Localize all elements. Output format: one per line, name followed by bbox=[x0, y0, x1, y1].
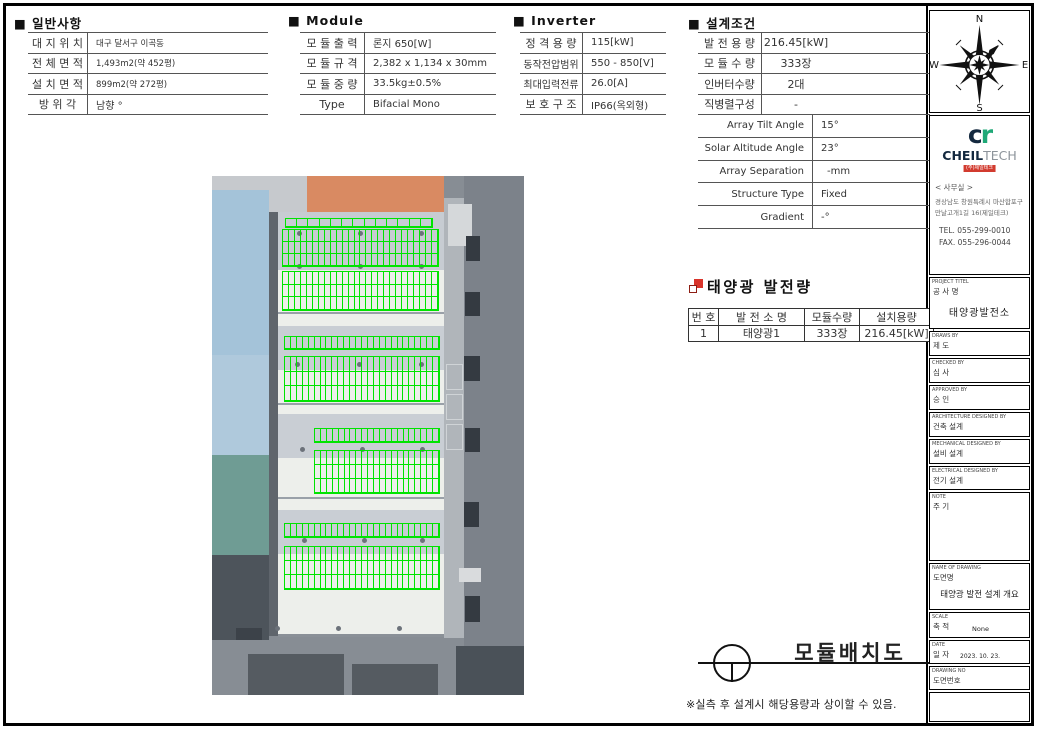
titleblock-label-en: DATE bbox=[932, 642, 945, 648]
field-value: -° bbox=[813, 206, 930, 228]
company-fax: FAX. 055-296-0044 bbox=[939, 238, 1011, 247]
field-label: 모 듈 수 량 bbox=[698, 54, 762, 74]
roof-vent bbox=[397, 626, 402, 631]
field-value: IP66(옥외형) bbox=[583, 95, 666, 115]
titleblock-project: PROJECT TITEL 공 사 명 태양광발전소 bbox=[929, 277, 1030, 329]
table-row: 보 호 구 조 IP66(옥외형) bbox=[520, 94, 666, 115]
field-value: Fixed bbox=[813, 183, 930, 205]
roof-vent bbox=[302, 538, 307, 543]
table-row: Array Tilt Angle 15° bbox=[698, 114, 930, 137]
column-header: 설치용량 bbox=[860, 309, 933, 325]
field-value: - bbox=[762, 95, 930, 115]
company-badge: (주)제일테크 bbox=[963, 165, 996, 172]
table-row: 인버터수량 2대 bbox=[698, 73, 930, 94]
company-tel: TEL. 055-299-0010 bbox=[939, 226, 1010, 235]
titleblock-draws-by: DRAWS BY 제 도 bbox=[929, 331, 1030, 356]
drawing-title: 모듈배치도 bbox=[770, 637, 930, 667]
titleblock-checked-by: CHECKED BY 심 사 bbox=[929, 358, 1030, 383]
drawing-reference-symbol-tick bbox=[731, 663, 733, 682]
titleblock-date: DATE 일 자 2023. 10. 23. bbox=[929, 640, 1030, 664]
table-row: 모 듈 수 량 333장 bbox=[698, 53, 930, 74]
field-label: 정 격 용 량 bbox=[520, 33, 583, 53]
table-row: 동작전압범위 550 - 850[V] bbox=[520, 53, 666, 74]
field-label: Solar Altitude Angle bbox=[698, 138, 813, 160]
compass-east-label: E bbox=[1022, 60, 1028, 71]
titleblock-label-kr: 도면명 bbox=[933, 572, 954, 583]
table-row: 발 전 용 량 216.45[kW] bbox=[698, 32, 930, 53]
titleblock-mechanical: MECHANICAL DESIGNED BY 설비 설계 bbox=[929, 439, 1030, 464]
drawing-name-value: 태양광 발전 설계 개요 bbox=[930, 588, 1029, 600]
ground-shadow bbox=[352, 664, 438, 695]
table-row: 정 격 용 량 115[kW] bbox=[520, 32, 666, 53]
parked-car bbox=[464, 502, 479, 527]
titleblock-label-kr: 심 사 bbox=[933, 367, 949, 378]
column-header: 발 전 소 명 bbox=[719, 309, 805, 325]
design-conditions-table: 발 전 용 량 216.45[kW] 모 듈 수 량 333장 인버터수량 2대… bbox=[698, 32, 930, 114]
titleblock-drawing-no: DRAWING NO 도면번호 bbox=[929, 666, 1030, 690]
roof-divider bbox=[278, 497, 444, 499]
field-value: 15° bbox=[813, 115, 930, 137]
titleblock-drawing-name: NAME OF DRAWING 도면명 태양광 발전 설계 개요 bbox=[929, 563, 1030, 610]
company-box: cr CHEILTECH (주)제일테크 < 사무실 > 경상남도 창원특례시 … bbox=[929, 115, 1030, 275]
titleblock-label-kr: 일 자 bbox=[933, 649, 949, 660]
table-row: 모 듈 출 력 론지 650[W] bbox=[300, 32, 496, 53]
parked-car bbox=[466, 236, 480, 261]
cheiltech-logo-icon: cr bbox=[930, 122, 1029, 147]
building-bottom-edge bbox=[278, 634, 444, 637]
solar-panel-array bbox=[284, 356, 440, 402]
field-label: 모 듈 중 량 bbox=[300, 74, 365, 94]
parked-car bbox=[465, 292, 480, 316]
titleblock-scale: SCALE 축 적 None bbox=[929, 612, 1030, 638]
titleblock-label-en: ARCHITECTURE DESIGNED BY bbox=[932, 414, 1006, 420]
field-value: Bifacial Mono bbox=[365, 95, 496, 115]
field-label: 설 치 면 적 bbox=[28, 74, 88, 94]
table-row: Array Separation -mm bbox=[698, 160, 930, 183]
roof-vent bbox=[275, 626, 280, 631]
parked-car bbox=[236, 628, 262, 640]
field-value: 2대 bbox=[762, 74, 930, 94]
field-value: 33.5kg±0.5% bbox=[365, 74, 496, 94]
general-info-table: 대 지 위 치 대구 달서구 이곡동 전 체 면 적 1,493m2(약 452… bbox=[28, 32, 268, 115]
table-row: 대 지 위 치 대구 달서구 이곡동 bbox=[28, 32, 268, 53]
table-row: 직병렬구성 - bbox=[698, 94, 930, 115]
company-name: CHEILTECH bbox=[930, 150, 1029, 163]
table-cell: 333장 bbox=[805, 326, 860, 342]
compass-north-label: N bbox=[976, 14, 983, 25]
titleblock-label-en: DRAWS BY bbox=[932, 333, 958, 339]
solar-panel-array bbox=[284, 523, 440, 538]
table-row: Type Bifacial Mono bbox=[300, 94, 496, 115]
titleblock-architecture: ARCHITECTURE DESIGNED BY 건축 설계 bbox=[929, 412, 1030, 437]
parked-car bbox=[465, 428, 480, 452]
parked-car bbox=[464, 356, 480, 381]
table-row: 방 위 각 남향 ° bbox=[28, 94, 268, 115]
field-label: Array Tilt Angle bbox=[698, 115, 813, 137]
field-value: 899m2(약 272평) bbox=[88, 74, 268, 94]
field-label: 대 지 위 치 bbox=[28, 33, 88, 53]
field-label: 보 호 구 조 bbox=[520, 95, 583, 115]
generation-section-title: 태양광 발전량 bbox=[707, 276, 813, 297]
titleblock-electrical: ELECTRICAL DESIGNED BY 전기 설계 bbox=[929, 466, 1030, 490]
table-row: 1 태양광1 333장 216.45[kW] bbox=[689, 325, 933, 342]
field-label: 발 전 용 량 bbox=[698, 33, 762, 53]
ground-shadow bbox=[456, 646, 524, 695]
parked-car bbox=[465, 596, 480, 622]
field-label: 모 듈 규 격 bbox=[300, 54, 365, 74]
solar-panel-array bbox=[284, 546, 440, 590]
generation-table: 번 호 발 전 소 명 모듈수량 설치용량 1 태양광1 333장 216.45… bbox=[688, 308, 934, 342]
module-table: 모 듈 출 력 론지 650[W] 모 듈 규 격 2,382 x 1,134 … bbox=[300, 32, 496, 115]
titleblock-label-kr: 설비 설계 bbox=[933, 448, 963, 459]
roof-vent bbox=[420, 538, 425, 543]
roof-divider bbox=[278, 312, 444, 314]
field-value: 23° bbox=[813, 138, 930, 160]
titleblock-label-en: ELECTRICAL DESIGNED BY bbox=[932, 468, 998, 474]
parking-mark bbox=[446, 424, 463, 450]
roof-vent bbox=[362, 538, 367, 543]
ground-shadow bbox=[248, 654, 344, 695]
table-row: Structure Type Fixed bbox=[698, 182, 930, 205]
compass-rose: N S W E bbox=[930, 11, 1029, 112]
table-row: 설 치 면 적 899m2(약 272평) bbox=[28, 73, 268, 94]
field-label: Structure Type bbox=[698, 183, 813, 205]
column-header: 모듈수량 bbox=[805, 309, 860, 325]
field-value: 2,382 x 1,134 x 30mm bbox=[365, 54, 496, 74]
solar-panel-array bbox=[314, 450, 440, 494]
solar-panel-array bbox=[284, 336, 440, 350]
orange-roof-building bbox=[307, 176, 444, 212]
titleblock-label-en: PROJECT TITEL bbox=[932, 279, 969, 285]
table-row: 전 체 면 적 1,493m2(약 452평) bbox=[28, 53, 268, 74]
company-address-line2: 만날고개1길 16(제일테크) bbox=[935, 207, 1008, 217]
table-header-row: 번 호 발 전 소 명 모듈수량 설치용량 bbox=[689, 309, 933, 325]
titleblock-label-kr: 제 도 bbox=[933, 340, 949, 351]
site-photo bbox=[212, 176, 524, 695]
table-row: Gradient -° bbox=[698, 205, 930, 228]
table-cell: 1 bbox=[689, 326, 719, 342]
titleblock-label-kr: 승 인 bbox=[933, 394, 949, 405]
date-value: 2023. 10. 23. bbox=[960, 653, 1000, 660]
field-value: 115[kW] bbox=[583, 33, 666, 53]
titleblock-label-kr: 건축 설계 bbox=[933, 421, 963, 432]
solar-panel-array bbox=[314, 428, 440, 443]
scale-value: None bbox=[972, 625, 989, 633]
parking-mark bbox=[446, 394, 463, 420]
table-cell: 216.45[kW] bbox=[860, 326, 933, 342]
titleblock-label-en: NOTE bbox=[932, 494, 946, 500]
footnote: ※실측 후 설계시 해당용량과 상이할 수 있음. bbox=[686, 696, 897, 712]
roof-vent bbox=[300, 447, 305, 452]
inverter-table: 정 격 용 량 115[kW] 동작전압범위 550 - 850[V] 최대입력… bbox=[520, 32, 666, 115]
titleblock-label-en: SCALE bbox=[932, 614, 948, 620]
titleblock-label-en: DRAWING NO bbox=[932, 668, 966, 674]
field-label: 직병렬구성 bbox=[698, 95, 762, 115]
compass-west-label: W bbox=[930, 60, 939, 71]
titleblock-label-en: CHECKED BY bbox=[932, 360, 964, 366]
field-label: 인버터수량 bbox=[698, 74, 762, 94]
table-row: 최대입력전류 26.0[A] bbox=[520, 73, 666, 94]
project-title-value: 태양광발전소 bbox=[930, 304, 1029, 319]
field-label: 최대입력전류 bbox=[520, 74, 583, 94]
field-value: 론지 650[W] bbox=[365, 33, 496, 53]
module-section-header: ■ Module bbox=[288, 13, 364, 28]
titleblock-approved-by: APPROVED BY 승 인 bbox=[929, 385, 1030, 410]
drawing-sheet: ■ 일반사항 대 지 위 치 대구 달서구 이곡동 전 체 면 적 1,493m… bbox=[0, 0, 1037, 729]
field-value: 550 - 850[V] bbox=[583, 54, 666, 74]
titleblock-label-en: MECHANICAL DESIGNED BY bbox=[932, 441, 1001, 447]
titleblock-label-en: NAME OF DRAWING bbox=[932, 565, 981, 571]
field-label: Type bbox=[300, 95, 365, 115]
table-cell: 태양광1 bbox=[719, 326, 805, 342]
titleblock-note: NOTE 주 기 bbox=[929, 492, 1030, 561]
building-edge-shadow bbox=[269, 212, 278, 636]
design-section-header: ■ 설계조건 bbox=[688, 13, 756, 32]
titleblock-label-kr: 주 기 bbox=[933, 501, 949, 512]
inverter-section-header: ■ Inverter bbox=[513, 13, 596, 28]
compass-box: N S W E bbox=[929, 10, 1030, 113]
table-row: Solar Altitude Angle 23° bbox=[698, 137, 930, 160]
office-label: < 사무실 > bbox=[935, 182, 973, 193]
field-label: 모 듈 출 력 bbox=[300, 33, 365, 53]
titleblock-label-kr: 도면번호 bbox=[933, 675, 961, 686]
field-value: 216.45[kW] bbox=[762, 33, 930, 53]
field-value: 남향 ° bbox=[88, 95, 268, 115]
field-value: 1,493m2(약 452평) bbox=[88, 54, 268, 74]
green-roof-area bbox=[212, 455, 269, 555]
titleblock-label-kr: 전기 설계 bbox=[933, 475, 963, 486]
titleblock-empty-box bbox=[929, 692, 1030, 722]
column-header: 번 호 bbox=[689, 309, 719, 325]
parked-car-white bbox=[459, 568, 481, 582]
solar-panel-array bbox=[282, 229, 439, 267]
field-value: 333장 bbox=[762, 54, 930, 74]
solar-panel-array bbox=[282, 271, 439, 311]
table-row: 모 듈 규 격 2,382 x 1,134 x 30mm bbox=[300, 53, 496, 74]
table-row: 모 듈 중 량 33.5kg±0.5% bbox=[300, 73, 496, 94]
roof-vent bbox=[336, 626, 341, 631]
field-label: 동작전압범위 bbox=[520, 54, 583, 74]
titleblock-label-en: APPROVED BY bbox=[932, 387, 967, 393]
blue-roof-building bbox=[212, 190, 269, 355]
blue-roof-building-2 bbox=[212, 355, 269, 455]
field-value: 26.0[A] bbox=[583, 74, 666, 94]
overlapping-squares-icon bbox=[689, 279, 703, 293]
roof-divider bbox=[278, 403, 444, 405]
field-label: Array Separation bbox=[698, 161, 813, 183]
company-address-line1: 경상남도 창원특례시 마산합포구 bbox=[935, 196, 1023, 206]
field-label: 전 체 면 적 bbox=[28, 54, 88, 74]
general-section-header: ■ 일반사항 bbox=[14, 13, 82, 32]
design-conditions-table-en: Array Tilt Angle 15° Solar Altitude Angl… bbox=[698, 114, 930, 229]
field-label: 방 위 각 bbox=[28, 95, 88, 115]
parking-mark bbox=[446, 364, 463, 390]
titleblock-label-kr: 축 적 bbox=[933, 621, 949, 632]
titleblock-label-kr: 공 사 명 bbox=[933, 286, 958, 297]
solar-panel-array bbox=[285, 218, 433, 228]
field-value: 대구 달서구 이곡동 bbox=[88, 33, 268, 53]
field-value: -mm bbox=[813, 161, 930, 183]
field-label: Gradient bbox=[698, 206, 813, 228]
